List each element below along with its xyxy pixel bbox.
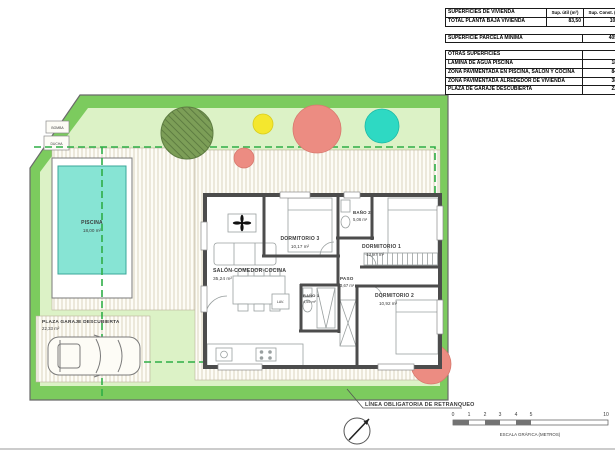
tree-salmon-large-icon (293, 105, 341, 153)
window (201, 222, 207, 250)
otras-row-value: 38,59 (583, 77, 615, 86)
car-icon (48, 335, 140, 377)
row-parcela-label: SUPERFICIE PARCELA MÍNIMA (446, 34, 583, 43)
scale-tick-5: 5 (530, 412, 533, 418)
window (201, 286, 207, 312)
window (437, 300, 443, 334)
scale-tick-0: 0 (452, 412, 455, 418)
paso-area: 3,67 m² (340, 283, 355, 288)
bano1-area: 4,55 m² (303, 300, 317, 304)
dorm1-area: 13,97 m² (366, 252, 385, 257)
otras-row-label: ZONA PAVIMENTADA EN PISCINA, SALÓN Y COC… (446, 68, 583, 77)
bath2-sink (341, 200, 350, 212)
otras-row-label: LÁMINA DE AGUA PISCINA (446, 60, 583, 69)
dorm1-label: DORMITORIO 1 (362, 244, 401, 250)
col-header-util: Sup. útil (m²) (547, 9, 584, 18)
scale-caption: ESCALA GRÁFICA (METROS) (500, 432, 561, 437)
tree-teal-icon (365, 109, 399, 143)
tree-olive-icon (161, 107, 213, 159)
window (378, 364, 414, 370)
paso-label: PASO (340, 276, 354, 281)
row-total-label: TOTAL PLANTA BAJA VIVIENDA (446, 17, 547, 26)
scale-tick-4: 4 (515, 412, 518, 418)
otras-title: OTRAS SUPERFICIES (446, 51, 583, 60)
vivienda-table: SUPERFICIES DE VIVIENDA Sup. útil (m²) S… (445, 8, 615, 27)
row-parcela-value: 405,00 (583, 34, 615, 43)
otras-row-value: 18,00 (583, 60, 615, 69)
kitchen-hob (256, 348, 276, 361)
scale-bar: 0 1 2 3 4 5 10 ESCALA GRÁFICA (METROS) (452, 412, 609, 437)
garage-label: PLAZA GARAJE DESCUBIERTA (42, 319, 120, 325)
row-total-const: 101,09 (584, 17, 615, 26)
col-header-const: Sup. Const. (m²) (584, 9, 615, 18)
sofa (214, 243, 276, 265)
tree-salmon-small-icon (234, 148, 254, 168)
otras-row-value: 84,01 (583, 68, 615, 77)
garage-area: 22,33 m² (42, 326, 60, 331)
dorm3-label: DORMITORIO 3 (281, 236, 320, 242)
otras-row-label: ZONA PAVIMENTADA ALREDEDOR DE VIVIENDA (446, 77, 583, 86)
scale-tick-1: 1 (468, 412, 471, 418)
table-title: SUPERFICIES DE VIVIENDA (446, 9, 547, 18)
parcela-table: SUPERFICIE PARCELA MÍNIMA 405,00 (445, 34, 615, 44)
bano2-area: 5,06 m² (353, 217, 368, 222)
bed-dorm2 (396, 300, 438, 354)
bath1-shower (317, 288, 335, 328)
surface-tables: SUPERFICIES DE VIVIENDA Sup. útil (m²) S… (445, 8, 615, 95)
row-total-util: 83,50 (547, 17, 584, 26)
ducha-label: DUCHA (50, 142, 63, 146)
pool-label: PISCINA (81, 220, 103, 226)
window (280, 192, 310, 198)
salon-label: SALÓN-COMEDOR-COCINA (213, 266, 286, 274)
dorm2-area: 10,92 m² (379, 301, 398, 306)
scale-tick-10: 10 (603, 412, 609, 418)
otras-table: OTRAS SUPERFICIES LÁMINA DE AGUA PISCINA… (445, 50, 615, 95)
bomba-label: BOMBA (51, 126, 64, 130)
floor-plan-sheet: PISCINA 18,00 m² BOMBA DUCHA (0, 0, 615, 454)
window (218, 364, 262, 370)
bath2-toilet (341, 216, 350, 228)
scale-tick-3: 3 (499, 412, 502, 418)
salon-area: 35,24 m² (213, 276, 232, 282)
pool-area: 18,00 m² (83, 228, 102, 233)
otras-row-label: PLAZA DE GARAJE DESCUBIERTA (446, 86, 583, 95)
window (437, 206, 443, 240)
kitchen-sink (216, 348, 232, 361)
window (344, 192, 360, 198)
pool: PISCINA 18,00 m² (52, 158, 132, 298)
house: SALÓN-COMEDOR-COCINA 35,24 m² DORMITORIO… (201, 192, 443, 370)
retranqueo-label: LÍNEA OBLIGATORIA DE RETRANQUEO (365, 400, 475, 408)
north-arrow-icon (344, 418, 370, 444)
scale-tick-2: 2 (484, 412, 487, 418)
dorm2-label: DORMITORIO 2 (375, 293, 414, 299)
otras-row-value: 22,19 (583, 86, 615, 95)
lav-label: LAV. (277, 300, 284, 304)
bano1-label: BAÑO 1 (303, 293, 320, 298)
dorm3-area: 10,17 m² (291, 244, 310, 249)
tree-yellow-icon (253, 114, 273, 134)
bano2-label: BAÑO 2 (353, 210, 371, 215)
